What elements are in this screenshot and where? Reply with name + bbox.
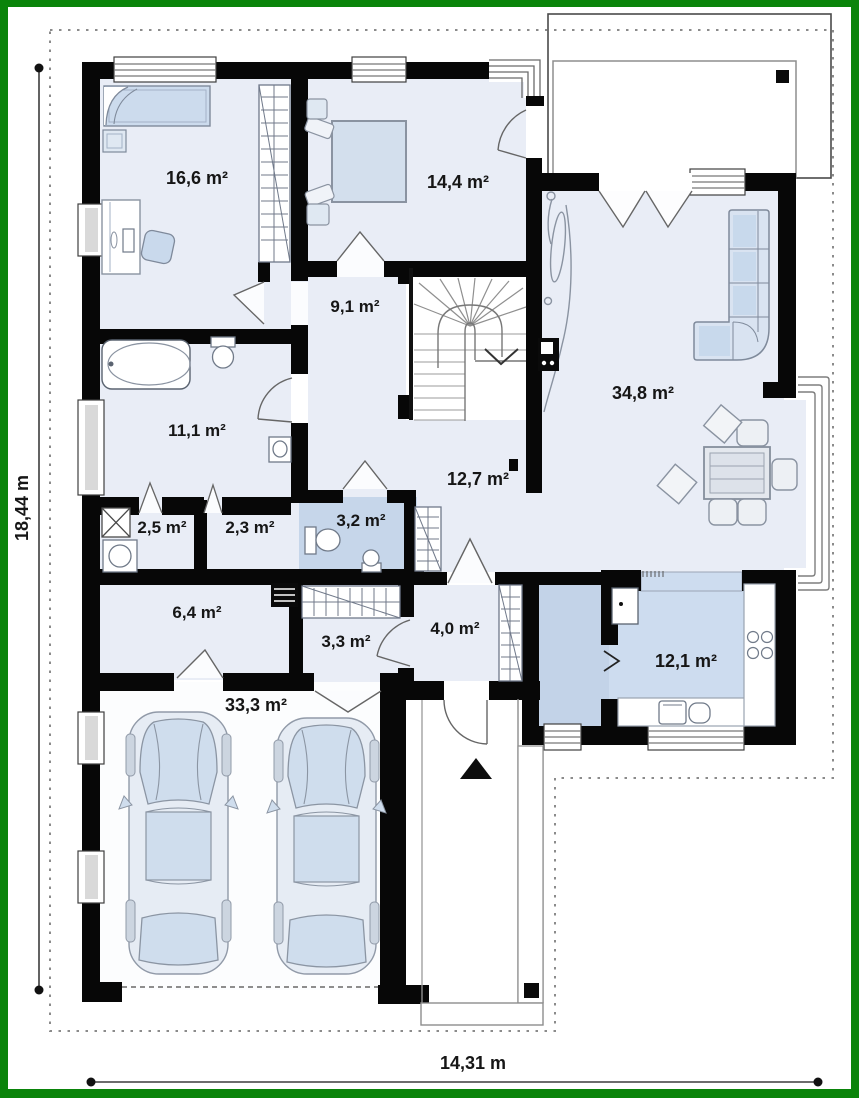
- svg-text:6,4 m²: 6,4 m²: [172, 603, 221, 622]
- svg-text:3,3 m²: 3,3 m²: [321, 632, 370, 651]
- svg-text:18,44 m: 18,44 m: [12, 475, 32, 541]
- svg-text:12,1 m²: 12,1 m²: [655, 651, 717, 671]
- svg-text:34,8 m²: 34,8 m²: [612, 383, 674, 403]
- svg-text:14,4 m²: 14,4 m²: [427, 172, 489, 192]
- svg-text:3,2 m²: 3,2 m²: [336, 511, 385, 530]
- svg-text:33,3 m²: 33,3 m²: [225, 695, 287, 715]
- svg-text:2,3 m²: 2,3 m²: [225, 518, 274, 537]
- svg-text:2,5 m²: 2,5 m²: [137, 518, 186, 537]
- svg-text:11,1 m²: 11,1 m²: [168, 421, 226, 440]
- svg-text:9,1 m²: 9,1 m²: [330, 297, 379, 316]
- svg-text:14,31 m: 14,31 m: [440, 1053, 506, 1073]
- svg-text:4,0 m²: 4,0 m²: [430, 619, 479, 638]
- svg-text:12,7 m²: 12,7 m²: [447, 469, 509, 489]
- svg-text:16,6 m²: 16,6 m²: [166, 168, 228, 188]
